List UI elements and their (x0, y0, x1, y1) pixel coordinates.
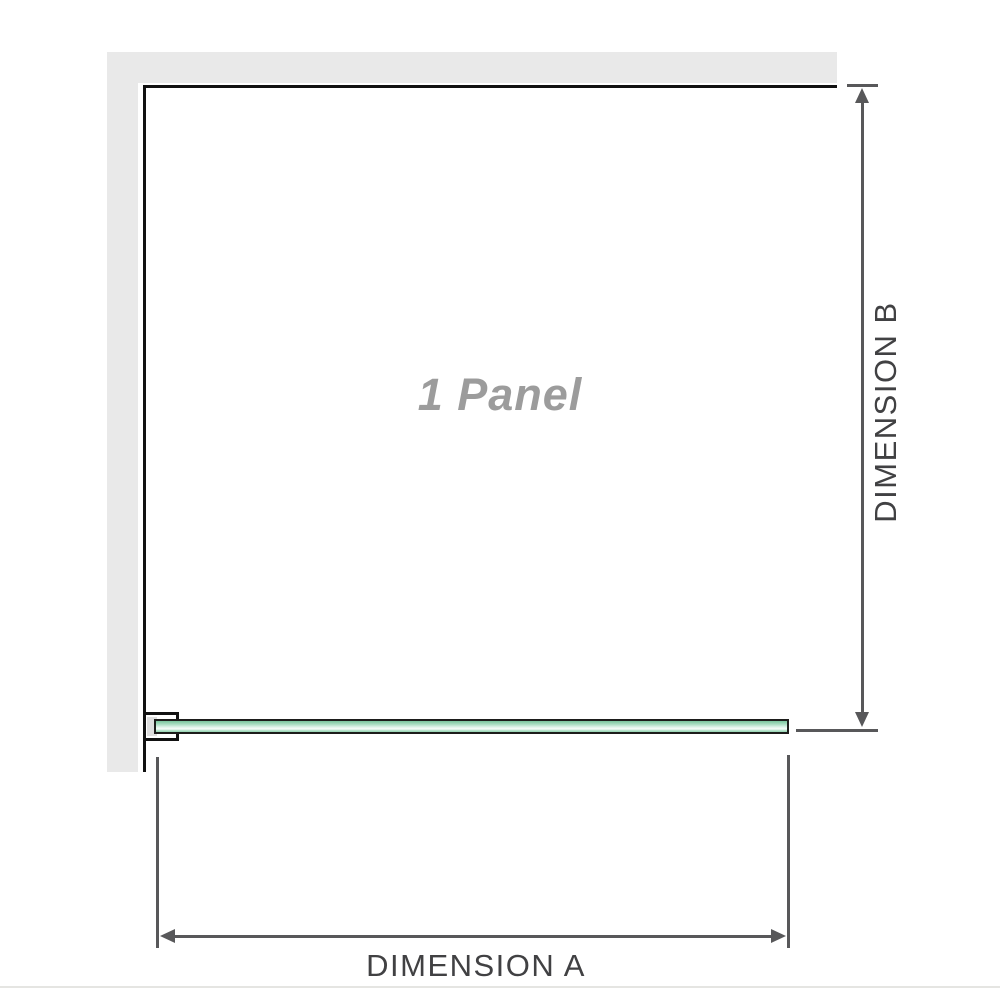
wall-left (107, 52, 138, 772)
panel-left-edge (143, 85, 146, 772)
dimension-diagram-canvas: 1 Panel DIMENSION B DIMENSION A (0, 0, 1000, 1000)
panel-count-label: 1 Panel (418, 369, 583, 421)
dim-b-label: DIMENSION B (868, 301, 904, 522)
dim-b-line (861, 100, 864, 715)
panel-top-edge (143, 85, 837, 88)
dim-a-line (170, 935, 776, 938)
dim-a-left-extension (156, 757, 159, 948)
dim-b-bottom-tick (796, 729, 878, 732)
arrow-right-icon (771, 929, 786, 943)
dim-b-top-tick (847, 84, 878, 87)
ground-line (0, 986, 1000, 988)
dim-a-label: DIMENSION A (366, 948, 586, 984)
wall-top (107, 52, 837, 83)
dim-a-right-extension (787, 755, 790, 948)
glass-panel (154, 719, 789, 734)
arrow-down-icon (855, 712, 869, 727)
